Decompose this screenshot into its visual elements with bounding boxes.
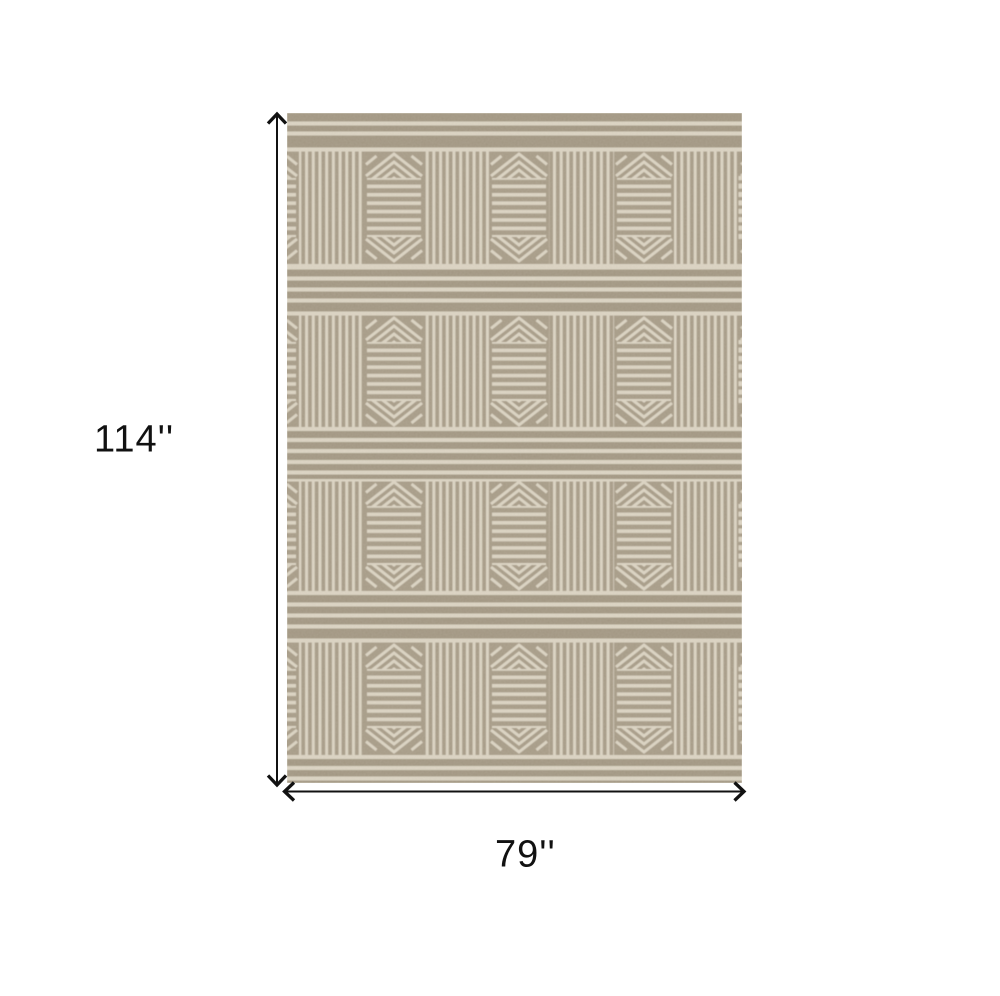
svg-text:114'': 114'' bbox=[94, 419, 174, 461]
svg-text:79'': 79'' bbox=[495, 834, 556, 876]
